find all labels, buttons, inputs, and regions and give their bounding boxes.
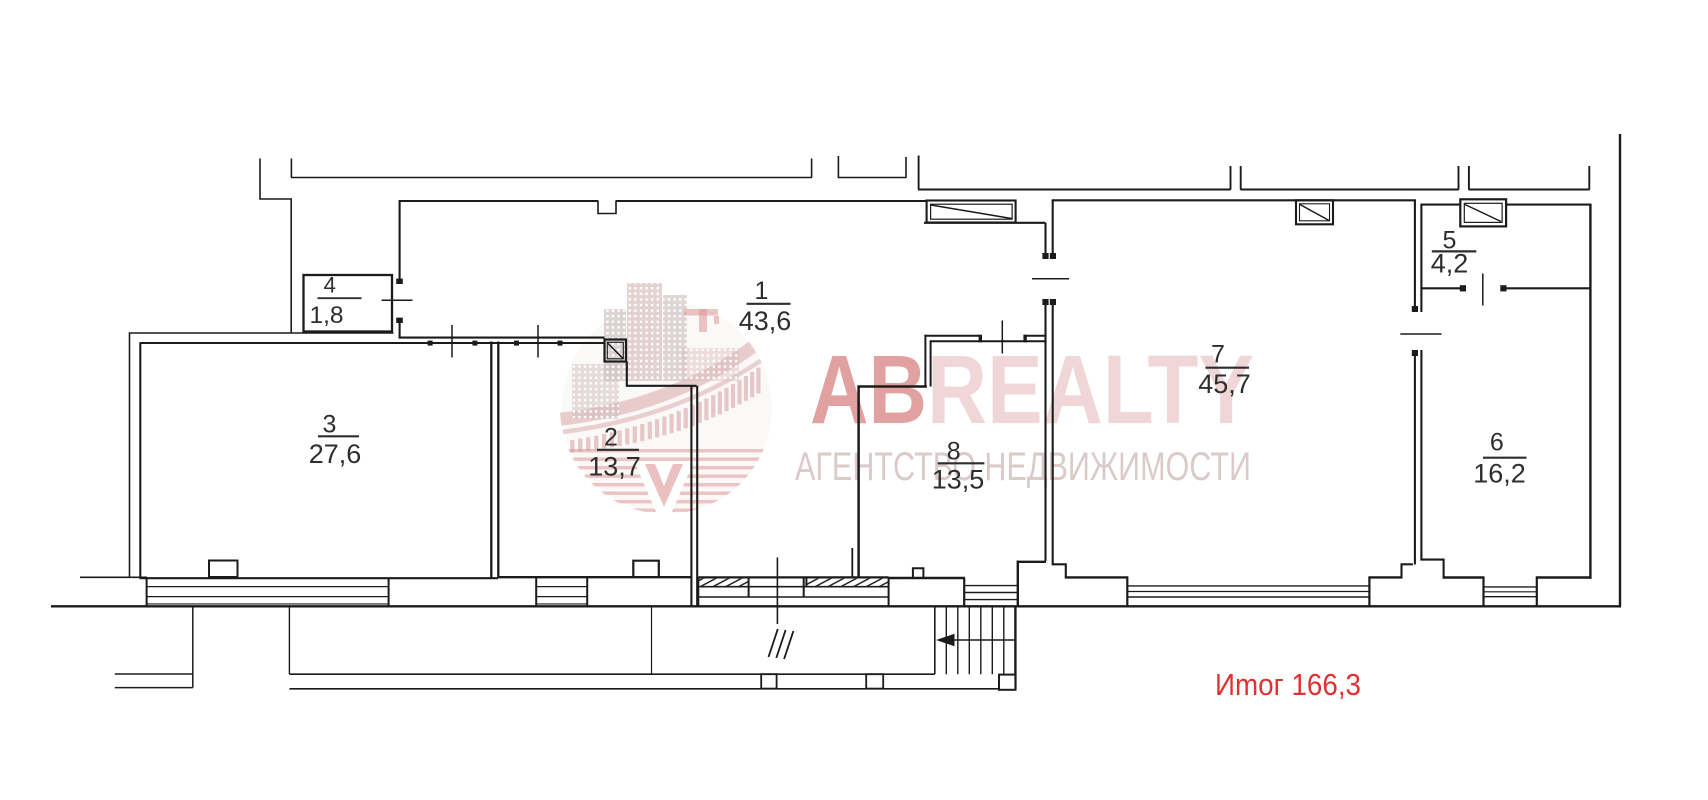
svg-text:4,2: 4,2 xyxy=(1431,249,1469,279)
svg-text:4: 4 xyxy=(324,273,336,298)
svg-text:АГЕНТСТВО НЕДВИЖИМОСТИ: АГЕНТСТВО НЕДВИЖИМОСТИ xyxy=(795,445,1251,489)
svg-text:7: 7 xyxy=(1211,341,1225,369)
svg-text:16,2: 16,2 xyxy=(1473,459,1526,489)
svg-text:АВ: АВ xyxy=(810,335,927,444)
svg-text:1,8: 1,8 xyxy=(309,302,343,329)
svg-text:8: 8 xyxy=(947,438,961,466)
svg-text:45,7: 45,7 xyxy=(1198,369,1251,399)
svg-text:1: 1 xyxy=(755,277,769,305)
svg-text:6: 6 xyxy=(1490,429,1504,457)
svg-text:27,6: 27,6 xyxy=(309,439,362,469)
svg-text:13,7: 13,7 xyxy=(588,452,641,482)
svg-text:Иmог 166,3: Иmог 166,3 xyxy=(1215,667,1361,702)
svg-text:3: 3 xyxy=(323,411,337,439)
svg-text:43,6: 43,6 xyxy=(739,306,792,336)
svg-text:13,5: 13,5 xyxy=(932,465,985,495)
svg-text:2: 2 xyxy=(604,424,618,452)
